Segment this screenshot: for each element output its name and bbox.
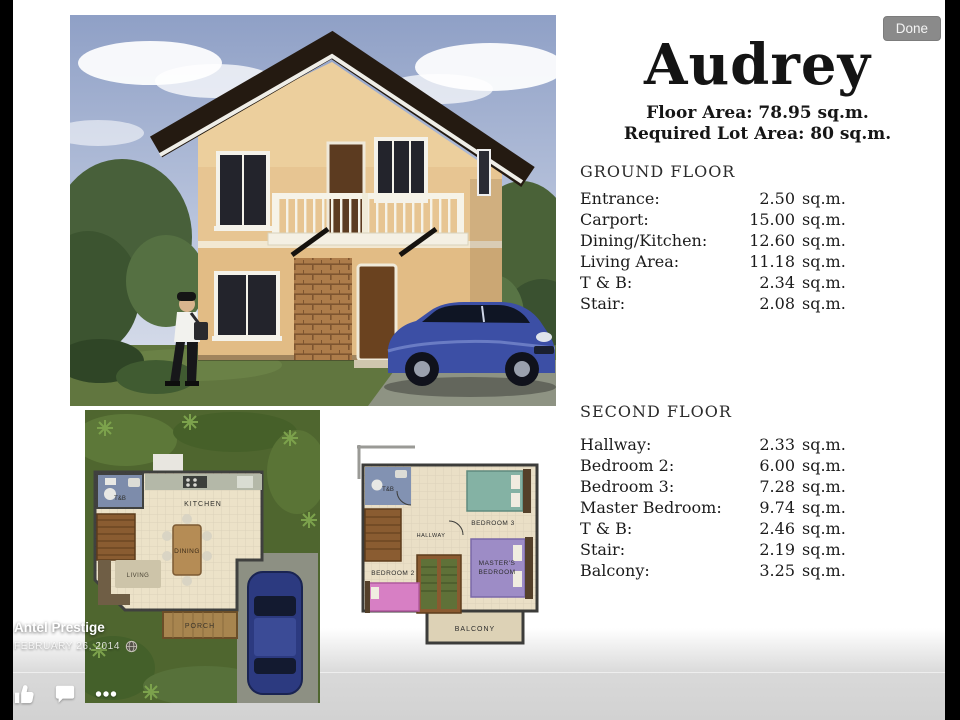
floor-area-line: Floor Area: 78.95 sq.m. — [600, 103, 915, 123]
kitchen-label: KITCHEN — [184, 501, 222, 508]
ground-floor-heading: GROUND FLOOR — [580, 162, 735, 181]
table-row: Hallway: 2.33sq.m. — [580, 434, 885, 455]
public-globe-icon — [125, 640, 138, 653]
room-area: 12.60sq.m. — [748, 230, 846, 251]
table-row: T & B: 2.46sq.m. — [580, 518, 885, 539]
letterbox-right — [945, 0, 960, 720]
sofa — [98, 560, 111, 596]
room-area: 2.19sq.m. — [748, 539, 846, 560]
tb-label: T&B — [114, 496, 126, 502]
room-area: 6.00sq.m. — [748, 455, 846, 476]
speech-bubble-icon — [54, 683, 76, 705]
table-row: Living Area: 11.18sq.m. — [580, 251, 885, 272]
bedroom3-bed — [467, 469, 531, 513]
table-row: Entrance: 2.50sq.m. — [580, 188, 885, 209]
second-floor-heading: SECOND FLOOR — [580, 402, 732, 421]
done-button[interactable]: Done — [883, 16, 941, 41]
room-label: Stair: — [580, 293, 625, 314]
upper-window-right — [376, 139, 426, 201]
room-area: 3.25sq.m. — [748, 560, 846, 581]
bush — [116, 360, 196, 394]
ground-floor-plan: T&B KITCHEN DINING LIVING PORCH — [85, 410, 320, 703]
room-area: 2.46sq.m. — [748, 518, 846, 539]
bedroom2-bed — [365, 581, 419, 613]
room-label: Stair: — [580, 539, 625, 560]
room-label: Master Bedroom: — [580, 497, 722, 518]
table-row: Balcony: 3.25sq.m. — [580, 560, 885, 581]
room-label: Entrance: — [580, 188, 660, 209]
table-row: Bedroom 2: 6.00sq.m. — [580, 455, 885, 476]
room-area: 11.18sq.m. — [748, 251, 846, 272]
stone-accent-wall — [294, 258, 352, 360]
lot-area-line: Required Lot Area: 80 sq.m. — [600, 124, 915, 144]
room-label: Balcony: — [580, 560, 650, 581]
action-bar — [12, 682, 118, 706]
living-label: LIVING — [127, 573, 150, 579]
table-row: Stair: 2.19sq.m. — [580, 539, 885, 560]
more-button[interactable] — [94, 682, 118, 706]
porch-label: PORCH — [185, 623, 215, 630]
second-floor-plan: T&B HALLWAY BEDROOM 3 BEDROOM 2 MASTER'S… — [355, 443, 545, 665]
bedroom2-label: BEDROOM 2 — [371, 570, 415, 577]
balcony-label: BALCONY — [455, 626, 495, 633]
thumbs-up-icon — [13, 683, 36, 706]
master-label-2: BEDROOM — [478, 569, 515, 576]
room-label: T & B: — [580, 518, 632, 539]
house-render-photo[interactable] — [70, 15, 556, 406]
room-label: Carport: — [580, 209, 649, 230]
master-bed — [471, 537, 533, 599]
room-label: Dining/Kitchen: — [580, 230, 707, 251]
parked-car-topview — [248, 572, 302, 694]
room-area: 2.34sq.m. — [748, 272, 846, 293]
table-row: Bedroom 3: 7.28sq.m. — [580, 476, 885, 497]
tb-label: T&B — [382, 487, 394, 493]
room-label: Bedroom 2: — [580, 455, 674, 476]
letterbox-left — [0, 0, 13, 720]
room-label: Hallway: — [580, 434, 651, 455]
date-text: FEBRUARY 26, 2014 — [14, 641, 120, 652]
author-name[interactable]: Antel Prestige — [14, 620, 105, 635]
ground-floor-table: Entrance: 2.50sq.m. Carport: 15.00sq.m. … — [580, 188, 885, 314]
room-area: 2.08sq.m. — [748, 293, 846, 314]
room-label: Living Area: — [580, 251, 679, 272]
closets — [417, 555, 461, 613]
room-label: Bedroom 3: — [580, 476, 674, 497]
comment-button[interactable] — [53, 682, 77, 706]
bedroom3-label: BEDROOM 3 — [471, 520, 515, 527]
table-row: Dining/Kitchen: 12.60sq.m. — [580, 230, 885, 251]
room-area: 15.00sq.m. — [748, 209, 846, 230]
hallway-label: HALLWAY — [417, 533, 446, 539]
table-row: T & B: 2.34sq.m. — [580, 272, 885, 293]
model-title: Audrey — [600, 36, 915, 94]
room-area: 9.74sq.m. — [748, 497, 846, 518]
room-area: 7.28sq.m. — [748, 476, 846, 497]
room-area: 2.50sq.m. — [748, 188, 846, 209]
dining-label: DINING — [174, 548, 200, 555]
ellipsis-icon — [94, 682, 118, 706]
photo-date: FEBRUARY 26, 2014 — [14, 640, 138, 653]
photo-viewer: T&B KITCHEN DINING LIVING PORCH — [0, 0, 960, 720]
table-row: Carport: 15.00sq.m. — [580, 209, 885, 230]
room-label: T & B: — [580, 272, 632, 293]
stairs — [97, 514, 135, 560]
table-row: Stair: 2.08sq.m. — [580, 293, 885, 314]
entry-canopy — [153, 454, 183, 472]
table-row: Master Bedroom: 9.74sq.m. — [580, 497, 885, 518]
master-label-1: MASTER'S — [479, 560, 516, 567]
room-area: 2.33sq.m. — [748, 434, 846, 455]
like-button[interactable] — [12, 682, 36, 706]
second-floor-table: Hallway: 2.33sq.m. Bedroom 2: 6.00sq.m. … — [580, 434, 885, 581]
